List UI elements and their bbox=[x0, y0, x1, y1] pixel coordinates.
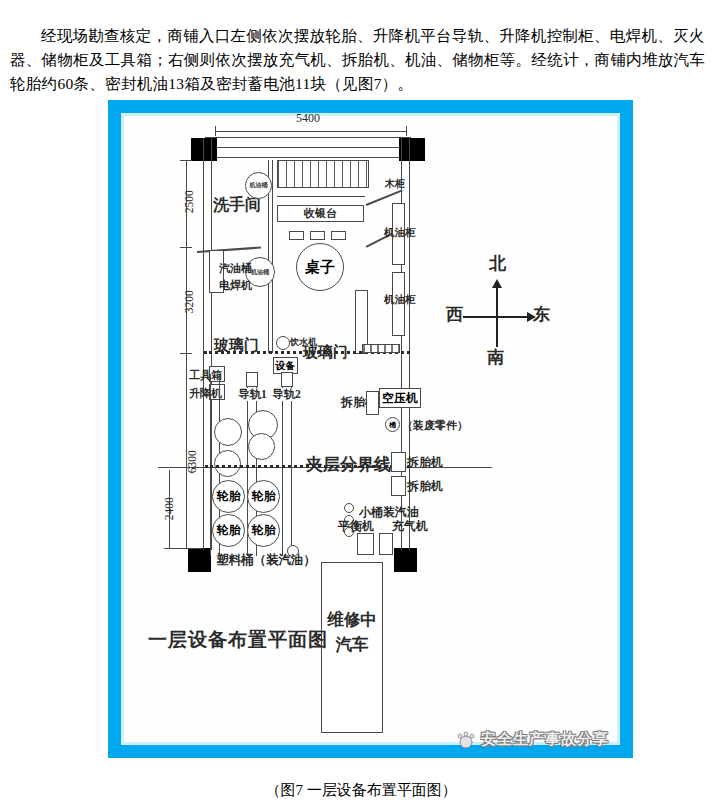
dimension-6300: 6300 bbox=[187, 447, 199, 477]
washroom-partition-inner bbox=[272, 160, 273, 353]
figure-caption: （图7 一层设备布置平面图） bbox=[0, 781, 722, 800]
dimension-top-line bbox=[215, 131, 407, 132]
car-under-repair-box: 维修中 汽车 bbox=[321, 562, 383, 733]
air-compressor-box: 空压机 bbox=[379, 388, 421, 408]
rail-cap-2 bbox=[281, 372, 293, 387]
compass-east-label: 东 bbox=[533, 306, 550, 325]
dimension-top-label: 5400 bbox=[296, 112, 320, 125]
tire-changer-box-b bbox=[391, 452, 406, 472]
stairs-hatch bbox=[277, 160, 369, 188]
wall-top-midline bbox=[206, 147, 410, 148]
watermark-text: 安全生产事故分享 bbox=[481, 730, 609, 749]
stool-3 bbox=[331, 231, 346, 240]
plan-title: 一层设备布置平面图 bbox=[148, 630, 328, 651]
waste-bucket-note: （装废零件） bbox=[402, 419, 468, 431]
welder-label: 电焊机 bbox=[219, 279, 252, 291]
compass-north-label: 北 bbox=[489, 255, 506, 274]
tire-changer-label-c: 拆胎机 bbox=[407, 480, 443, 493]
dimension-2400: 2400 bbox=[164, 494, 176, 524]
stool-1 bbox=[289, 231, 304, 240]
tire-changer-label-b: 拆胎机 bbox=[407, 456, 443, 469]
rail-1-label: 导轨1 bbox=[238, 388, 267, 401]
dim-tick-bottom bbox=[164, 548, 202, 549]
washroom-label: 洗手间 bbox=[213, 196, 261, 214]
tire-changer-box-a bbox=[366, 391, 379, 415]
waste-bucket-circle: 桶 bbox=[385, 417, 400, 432]
tire-circle-labeled-1: 轮胎 bbox=[212, 480, 245, 513]
wall-left-outer bbox=[203, 138, 204, 550]
tire-changer-box-c bbox=[391, 476, 406, 496]
balancer-box bbox=[357, 533, 374, 555]
compass-north-arrow-icon bbox=[492, 279, 502, 288]
balancer-label: 平衡机 bbox=[338, 520, 374, 533]
plastic-bucket-label: 塑料桶（装汽油） bbox=[216, 554, 316, 568]
table-circle: 桌子 bbox=[296, 243, 344, 291]
stairs-bottom-line bbox=[277, 196, 365, 197]
intro-paragraph: 经现场勘查核定，商铺入口左侧依次摆放轮胎、升降机平台导轨、升降机控制柜、电焊机、… bbox=[10, 24, 712, 96]
dimension-top-tick-left bbox=[215, 126, 216, 136]
watermark-logo-icon bbox=[456, 731, 476, 749]
rail-cap-1 bbox=[246, 372, 258, 387]
compass-horizontal-line bbox=[463, 316, 528, 318]
wood-cabinet-label: 木柜 bbox=[385, 178, 405, 189]
gasoline-drum-label: 汽油桶 bbox=[219, 262, 252, 274]
tire-circle-labeled-3: 轮胎 bbox=[212, 514, 245, 547]
dimension-left-line bbox=[186, 160, 187, 548]
compass-west-label: 西 bbox=[446, 306, 463, 325]
inflator-label: 充气机 bbox=[392, 520, 428, 533]
oil-cabinet-label-2: 机油柜 bbox=[384, 294, 416, 306]
car-label-line2: 汽车 bbox=[336, 636, 369, 654]
rail-2-label: 导轨2 bbox=[272, 388, 301, 401]
oil-cabinet-label-1: 机油柜 bbox=[384, 227, 416, 239]
column-top-left bbox=[191, 138, 217, 161]
tire-circle-plain-4 bbox=[214, 450, 241, 477]
tire-circle-plain-3 bbox=[248, 433, 275, 460]
dimension-2500: 2500 bbox=[184, 187, 196, 217]
dim-tick-3 bbox=[180, 353, 192, 354]
tire-circle-plain-1 bbox=[214, 418, 242, 446]
small-bucket-1 bbox=[344, 503, 354, 513]
water-dispenser-circle bbox=[276, 336, 290, 350]
mezzanine-line-label: 夹层分界线 bbox=[306, 456, 391, 475]
dim-tick-2 bbox=[180, 247, 192, 248]
dim-tick-1 bbox=[180, 160, 192, 161]
tire-circle-labeled-4: 轮胎 bbox=[247, 514, 280, 547]
small-gasoline-buckets-label: 小桶装汽油 bbox=[359, 506, 419, 519]
column-top-right bbox=[399, 138, 425, 161]
stool-2 bbox=[310, 231, 325, 240]
oil-drum-circle-1: 机油桶 bbox=[245, 172, 272, 199]
dimension-3200: 3200 bbox=[184, 287, 196, 317]
page: 经现场勘查核定，商铺入口左侧依次摆放轮胎、升降机平台导轨、升降机控制柜、电焊机、… bbox=[0, 0, 722, 810]
column-bottom-left bbox=[188, 548, 211, 572]
column-bottom-right bbox=[394, 548, 417, 572]
compass-south-label: 南 bbox=[487, 349, 504, 368]
cashier-counter: 收银台 bbox=[277, 205, 364, 222]
dimension-top-tick-right bbox=[406, 126, 407, 136]
glass-door-label-2: 玻璃门 bbox=[303, 344, 348, 361]
inflator-box bbox=[379, 533, 393, 555]
car-label-line1: 维修中 bbox=[327, 611, 377, 629]
watermark: 安全生产事故分享 bbox=[456, 730, 609, 749]
door-track-box bbox=[362, 344, 400, 353]
tire-circle-labeled-2: 轮胎 bbox=[247, 480, 280, 513]
